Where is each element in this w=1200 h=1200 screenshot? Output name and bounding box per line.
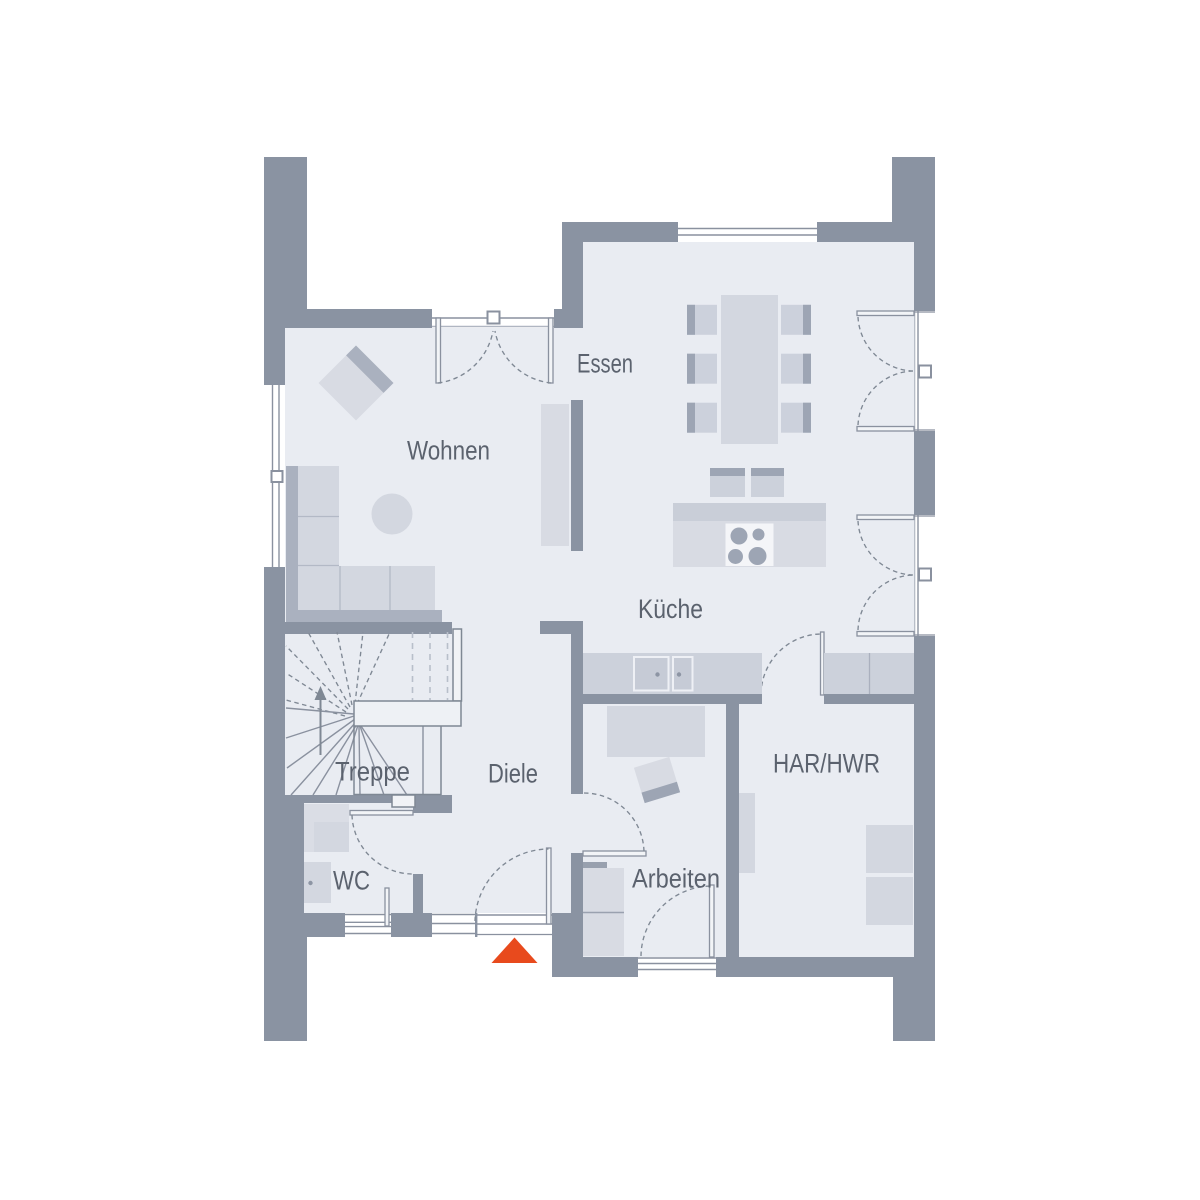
svg-text:Arbeiten: Arbeiten [632, 864, 720, 894]
svg-text:Küche: Küche [638, 594, 703, 624]
svg-text:Wohnen: Wohnen [407, 436, 490, 466]
svg-text:Diele: Diele [488, 759, 538, 789]
svg-text:HAR/HWR: HAR/HWR [773, 749, 880, 779]
svg-text:Essen: Essen [577, 349, 633, 379]
svg-text:WC: WC [333, 866, 370, 896]
svg-text:Treppe: Treppe [335, 757, 410, 787]
